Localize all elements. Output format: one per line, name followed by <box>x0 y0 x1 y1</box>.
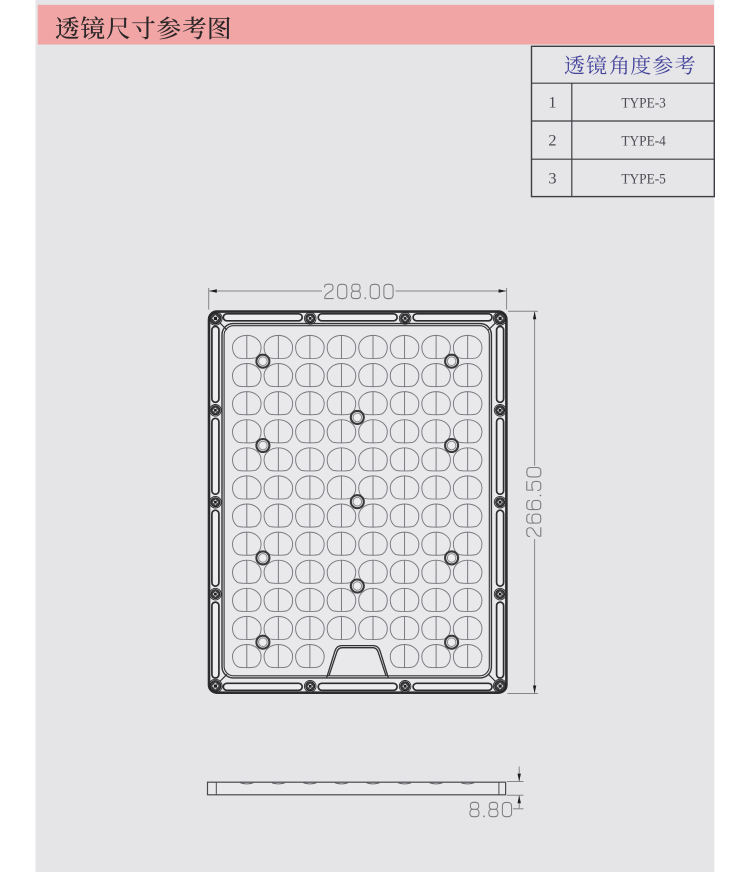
svg-text:TYPE-4: TYPE-4 <box>621 134 666 150</box>
svg-text:2: 2 <box>548 131 556 150</box>
svg-text:TYPE-3: TYPE-3 <box>621 96 666 112</box>
svg-text:1: 1 <box>548 93 556 112</box>
svg-text:TYPE-5: TYPE-5 <box>621 171 666 187</box>
svg-text:3: 3 <box>548 168 556 187</box>
